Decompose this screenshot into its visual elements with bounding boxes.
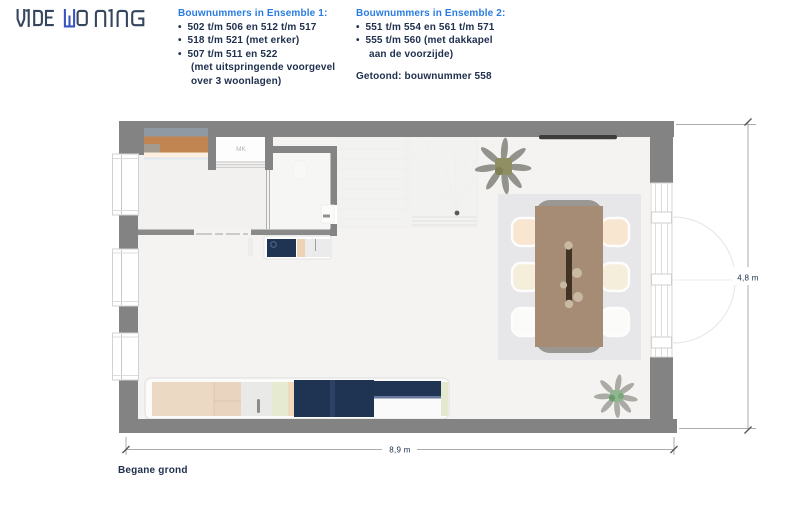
- svg-text:4,8 m: 4,8 m: [737, 274, 759, 283]
- svg-text:MK: MK: [236, 146, 246, 153]
- svg-text:8,9 m: 8,9 m: [389, 446, 411, 455]
